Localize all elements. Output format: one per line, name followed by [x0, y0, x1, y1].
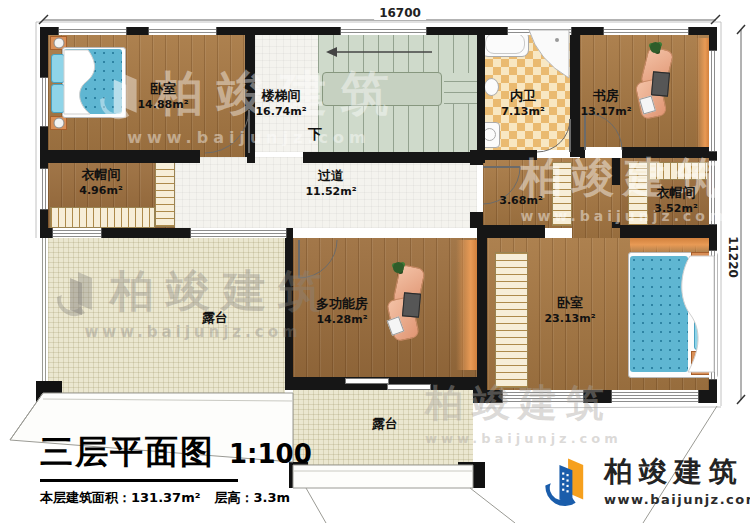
room-name: 露台 [372, 416, 398, 433]
window [611, 390, 699, 403]
computer-monitor [651, 71, 670, 96]
room-area: 23.13m² [544, 312, 595, 326]
hall-rack [552, 162, 572, 226]
room-name: 卧室 [137, 81, 188, 98]
room-area: 13.17m² [580, 105, 631, 119]
room-name: 多功能房 [316, 296, 368, 313]
dimension-tick [737, 25, 745, 34]
wall [477, 238, 487, 390]
wall [612, 222, 620, 228]
cloakroom-left-rack-vertical [155, 157, 175, 227]
terrace-post [458, 462, 485, 488]
wall [477, 225, 545, 238]
title-block: 三层平面图 1:100 本层建筑面积：131.37m² 层高：3.3m [40, 430, 312, 507]
room-name: 衣帽间 [79, 167, 122, 184]
pillow [51, 84, 65, 113]
dimension-top: 16700 [374, 6, 426, 20]
plant [393, 262, 404, 273]
room-label-cloakroom-left: 衣帽间 4.96m² [79, 167, 122, 198]
wall [580, 147, 585, 158]
company-logo-block: 柏竣建筑 www.baijunjz.com [540, 453, 750, 507]
room-label-bathroom: 内卫 7.13m² [501, 88, 544, 119]
window [52, 228, 102, 238]
cloakroom-right-rack-horizontal [648, 162, 708, 180]
room-label-terrace-left: 露台 [202, 310, 228, 327]
floor-height: 层高：3.3m [214, 489, 290, 507]
wall [622, 147, 717, 158]
pillow [51, 54, 65, 83]
bed-mattress [64, 49, 122, 114]
terrace-left-railing [40, 238, 48, 393]
room-label-study: 书房 13.17m² [580, 88, 631, 119]
stairs-down-label: 下 [308, 126, 322, 144]
dimension-tick [39, 15, 48, 24]
cloakroom-left-rack-horizontal [50, 207, 155, 228]
wall [285, 238, 293, 390]
room-area: 4.96m² [79, 184, 122, 198]
window [709, 50, 717, 152]
wall [303, 152, 485, 163]
wall [247, 150, 255, 163]
nightstand [50, 116, 67, 130]
room-area: 14.88m² [137, 98, 188, 112]
stairs-lower-flight [318, 104, 477, 152]
wall [470, 150, 483, 165]
sliding-door-panel [345, 378, 389, 384]
room-name: 书房 [580, 88, 631, 105]
room-area: 3.52m² [654, 202, 697, 216]
room-label-cloakroom-right: 衣帽间 3.52m² [654, 185, 697, 216]
terrace-post [36, 381, 62, 403]
floor-height-label: 层高： [214, 490, 253, 505]
cloakroom-right-rack-vertical [628, 162, 648, 226]
room-area: 14.28m² [316, 313, 368, 327]
room-area: 3.68m² [499, 194, 542, 208]
parapet [293, 465, 473, 488]
dimension-tick [711, 15, 720, 24]
floor-height-value: 3.3m [253, 490, 290, 505]
plan-scale: 1:100 [229, 439, 312, 469]
sliding-door-panel [387, 384, 431, 390]
floor-area-value: 131.37m² [131, 490, 200, 505]
wall [570, 35, 580, 157]
dimension-tick [737, 395, 745, 404]
company-website: www.baijunjz.com [604, 492, 750, 507]
window [148, 27, 217, 35]
study-wall-cabinet [696, 38, 709, 148]
parapet-line [43, 399, 293, 401]
plan-title: 三层平面图 [40, 430, 215, 475]
window [709, 250, 717, 380]
floor-plan: 柏竣建筑 www.baijunjz.com 柏竣建筑 www.baijunjz.… [0, 0, 750, 523]
terrace-left-floor [48, 238, 285, 393]
company-logo-icon [540, 453, 594, 507]
room-label-hall: 3.68m² [499, 194, 542, 208]
room-name: 衣帽间 [654, 185, 697, 202]
perspective-line [470, 488, 515, 523]
room-area: 16.74m² [255, 105, 306, 119]
stairs-landing-well [322, 72, 442, 106]
wall [620, 225, 717, 238]
wall [477, 150, 537, 160]
eaves-line [480, 407, 721, 408]
dimension-right: 11220 [726, 232, 740, 282]
room-name: 内卫 [501, 88, 544, 105]
wall [477, 35, 485, 157]
room-name: 过道 [305, 168, 356, 185]
floor-area-label: 本层建筑面积： [40, 490, 131, 505]
computer-monitor [402, 292, 421, 317]
room-label-bedroom-br: 卧室 23.13m² [544, 295, 595, 326]
wall [245, 35, 255, 157]
window [340, 27, 427, 35]
floor-area: 本层建筑面积：131.37m² [40, 489, 200, 507]
stairs-upper-flight [318, 35, 477, 73]
stairs-side-flight [444, 73, 477, 104]
window [40, 77, 48, 127]
room-area: 11.52m² [305, 185, 356, 199]
window [603, 27, 689, 35]
window [502, 390, 584, 403]
room-label-bedroom-tl: 卧室 14.88m² [137, 81, 188, 112]
wall [612, 158, 620, 185]
title-underline [40, 479, 238, 482]
bed-mattress [630, 256, 688, 372]
room-name: 楼梯间 [255, 88, 306, 105]
room-label-multi: 多功能房 14.28m² [316, 296, 368, 327]
window [709, 160, 717, 225]
window [507, 27, 572, 35]
bedroom-br-closet-rack [495, 252, 528, 388]
multi-room-wall-cabinet [456, 240, 477, 370]
room-label-terrace-bottom: 露台 [372, 416, 398, 433]
room-label-corridor: 过道 11.52m² [305, 168, 356, 199]
wall [175, 150, 200, 163]
room-name: 卧室 [544, 295, 595, 312]
room-area: 7.13m² [501, 105, 544, 119]
window [40, 168, 48, 210]
plant [650, 42, 661, 53]
company-name: 柏竣建筑 [604, 453, 750, 491]
window [190, 228, 287, 238]
wall [48, 150, 175, 163]
bathtub-inner [485, 33, 525, 54]
window [58, 27, 127, 35]
room-name: 露台 [202, 310, 228, 327]
room-label-stairwell: 楼梯间 16.74m² [255, 88, 306, 119]
bedroom-br-wall-cabinet [630, 238, 709, 253]
toilet-bowl [484, 78, 499, 96]
